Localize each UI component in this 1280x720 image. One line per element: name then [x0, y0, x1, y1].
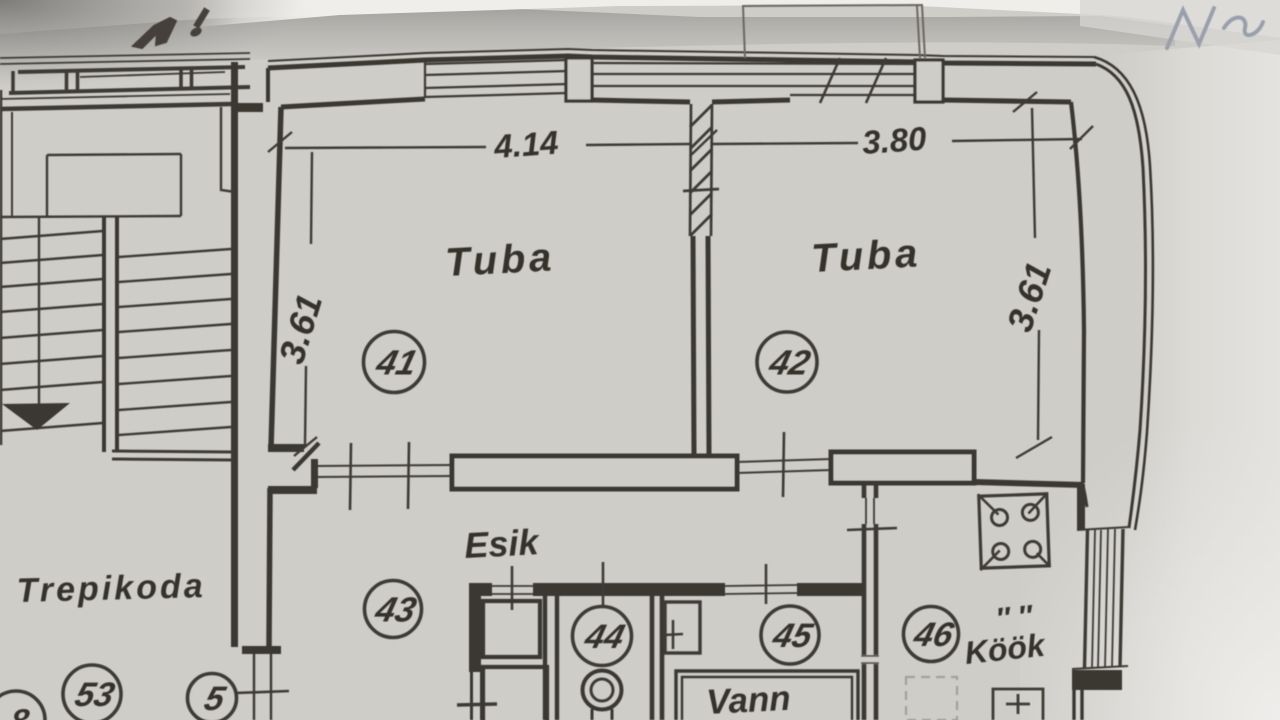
svg-text:Vann: Vann — [705, 679, 791, 720]
svg-text:Esik: Esik — [463, 521, 541, 566]
svg-text:Trepikoda: Trepikoda — [16, 567, 203, 610]
svg-text:4.14: 4.14 — [492, 124, 560, 165]
svg-text:3.80: 3.80 — [861, 120, 928, 161]
